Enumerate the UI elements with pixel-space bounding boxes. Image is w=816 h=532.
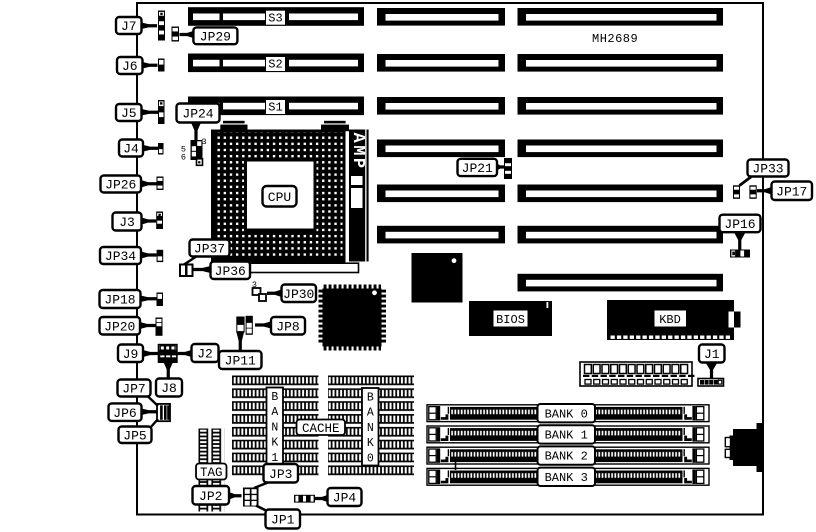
svg-text:3: 3	[252, 280, 257, 290]
svg-text:J8: J8	[161, 381, 177, 396]
svg-text:KBD: KBD	[659, 313, 681, 327]
svg-text:J7: J7	[121, 19, 137, 34]
svg-text:BIOS: BIOS	[496, 313, 525, 327]
svg-text:J2: J2	[197, 347, 213, 362]
svg-text:JP2: JP2	[199, 489, 222, 504]
svg-text:JP26: JP26	[105, 178, 136, 193]
svg-text:S1: S1	[268, 101, 282, 115]
svg-text:N: N	[367, 422, 374, 435]
svg-text:J9: J9	[123, 347, 139, 362]
svg-text:JP20: JP20	[104, 319, 135, 334]
svg-text:3: 3	[201, 137, 206, 147]
svg-text:S3: S3	[268, 11, 282, 25]
svg-text:0: 0	[367, 452, 374, 465]
svg-text:B: B	[367, 392, 374, 405]
svg-text:MH2689: MH2689	[592, 32, 638, 46]
svg-text:JP24: JP24	[182, 107, 213, 122]
svg-text:BANK 2: BANK 2	[545, 450, 588, 464]
svg-text:BANK 3: BANK 3	[545, 471, 588, 485]
svg-text:JP17: JP17	[776, 184, 807, 199]
svg-text:JP3: JP3	[269, 467, 292, 482]
svg-text:JP5: JP5	[123, 428, 146, 443]
svg-text:JP37: JP37	[194, 242, 225, 257]
svg-text:S2: S2	[268, 58, 282, 72]
svg-text:JP6: JP6	[113, 406, 136, 421]
svg-text:6: 6	[181, 153, 186, 163]
svg-text:JP18: JP18	[104, 293, 135, 308]
svg-text:N: N	[271, 421, 278, 434]
svg-text:J3: J3	[119, 215, 135, 230]
svg-text:A: A	[271, 406, 278, 419]
svg-text:JP11: JP11	[225, 354, 256, 369]
svg-text:JP30: JP30	[283, 287, 314, 302]
svg-text:JP29: JP29	[200, 29, 231, 44]
svg-text:JP36: JP36	[215, 264, 246, 279]
svg-text:CPU: CPU	[268, 190, 291, 205]
svg-text:JP1: JP1	[271, 513, 295, 528]
svg-text:J4: J4	[123, 142, 139, 157]
svg-text:JP8: JP8	[276, 319, 299, 334]
svg-text:JP21: JP21	[462, 161, 493, 176]
svg-text:CACHE: CACHE	[302, 422, 340, 436]
svg-text:A: A	[367, 407, 374, 420]
svg-text:K: K	[271, 437, 278, 450]
svg-text:J5: J5	[121, 106, 137, 121]
svg-text:K: K	[367, 437, 374, 450]
svg-text:J6: J6	[122, 59, 138, 74]
svg-text:AMP: AMP	[348, 133, 367, 171]
svg-text:B: B	[271, 391, 278, 404]
svg-text:JP33: JP33	[752, 162, 783, 177]
svg-text:BANK 0: BANK 0	[545, 407, 588, 421]
svg-text:JP34: JP34	[105, 249, 136, 264]
svg-text:BANK 1: BANK 1	[545, 429, 588, 443]
svg-text:JP4: JP4	[333, 491, 357, 506]
svg-text:JP7: JP7	[122, 382, 145, 397]
svg-text:J1: J1	[704, 347, 720, 362]
svg-text:JP16: JP16	[724, 217, 755, 232]
svg-text:TAG: TAG	[200, 466, 223, 480]
